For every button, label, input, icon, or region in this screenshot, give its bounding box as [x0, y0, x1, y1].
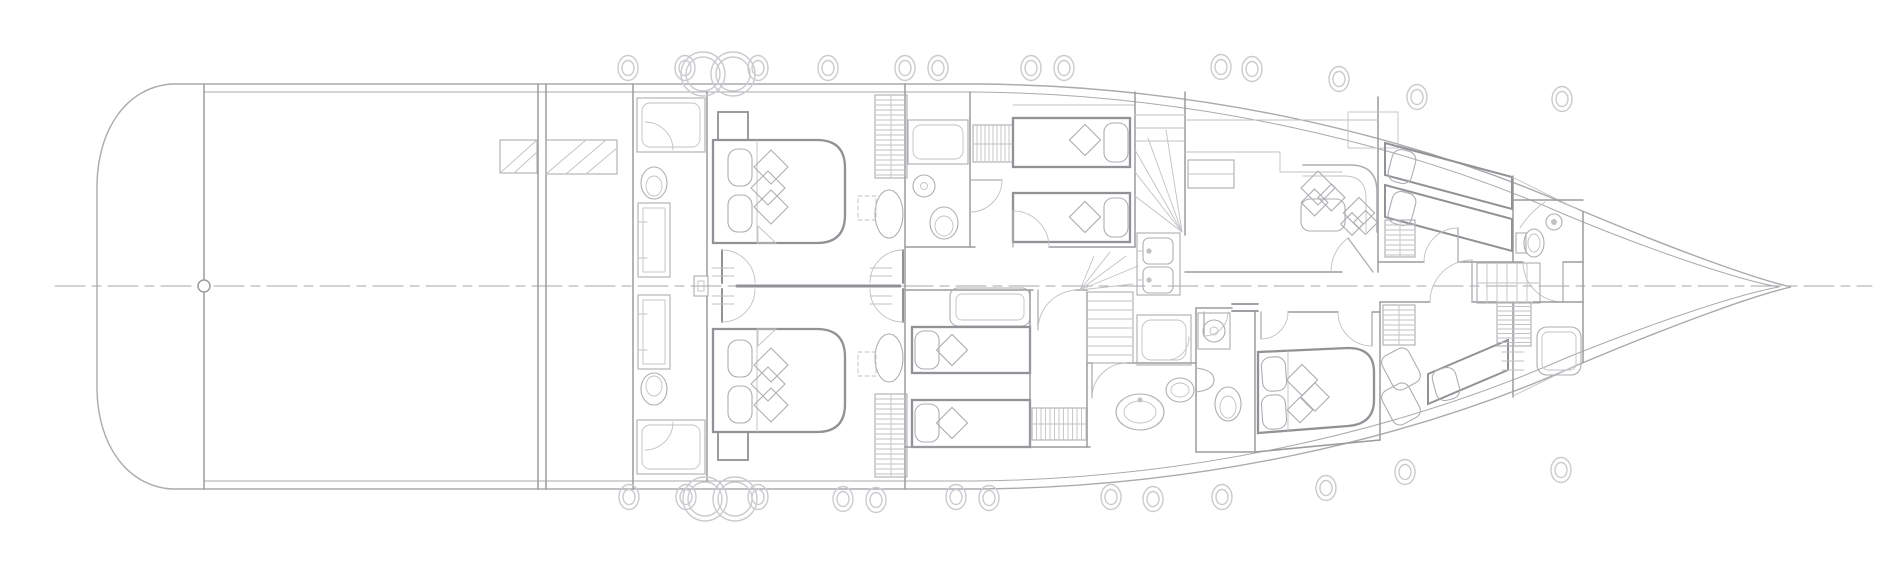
mess-cushion-2: [1318, 184, 1345, 211]
bow-berth-inner: [1542, 332, 1576, 370]
crew-bunk-1: [1385, 143, 1512, 209]
vip-door-arc-fwd-upper: [870, 250, 903, 283]
galley-sink-2-faucet: [1147, 278, 1151, 282]
porthole: [618, 56, 638, 81]
guest-bath-toilet: [1166, 378, 1194, 402]
vip-upper-pillow-2: [728, 195, 752, 232]
twin-lower-bed-1-pillow: [915, 331, 939, 369]
vip-lower-bed: [713, 329, 845, 432]
twin-upper-bed-2-cushion: [1069, 201, 1100, 232]
stern-hatch-right-hatching: [566, 140, 606, 174]
captain-cushion-1: [1286, 364, 1317, 395]
twin-upper-bed-1-pillow: [1104, 123, 1128, 162]
porthole-inner: [870, 493, 882, 508]
laundry-toilet-bowl: [1220, 396, 1236, 418]
vip-lower-pillow-2: [728, 386, 752, 423]
vip-lower-sheet-fold: [758, 329, 776, 346]
vip-lower-table: [858, 352, 876, 376]
porthole: [1211, 55, 1231, 80]
vip-lower-toilet: [641, 373, 667, 405]
centerline-mark: [198, 280, 210, 292]
vip-lower-vanity-top: [643, 300, 665, 364]
porthole-inner: [1058, 61, 1070, 76]
vip-upper-chair: [875, 190, 903, 238]
porthole-inner: [622, 61, 634, 76]
porthole: [748, 56, 768, 81]
twin-bath-toilet-bowl: [935, 216, 953, 236]
porthole-inner: [983, 491, 995, 506]
porthole-inner: [1556, 92, 1568, 107]
porthole-inner: [1025, 61, 1037, 76]
porthole: [1329, 67, 1349, 92]
vip-lower-chair: [875, 334, 903, 382]
mess-cushion-4: [1343, 197, 1374, 228]
deck-winch-inner: [716, 57, 750, 91]
captain-pillow-2: [1261, 394, 1287, 430]
porthole-inner: [1399, 465, 1411, 480]
porthole: [675, 56, 695, 81]
vip-door-arc-fwd-lower: [870, 289, 903, 322]
guest-bath-basin-inner: [1124, 401, 1156, 423]
vip-upper-cushion-1: [754, 150, 788, 184]
twin-upper-bed-2: [1013, 193, 1130, 242]
captain-cushion-3: [1287, 397, 1312, 422]
captain-door-right-arc: [1338, 312, 1372, 346]
stern-hatch-right-hatching: [586, 148, 617, 174]
twin-lower-door-arc: [1038, 290, 1078, 330]
porthole-inner: [1411, 90, 1423, 105]
mess-door-arc: [1331, 238, 1348, 272]
porthole: [1407, 85, 1427, 110]
vip-upper-vanity-top: [643, 208, 665, 272]
porthole: [895, 56, 915, 81]
porthole: [866, 488, 886, 513]
stairs-up-winders: [1148, 138, 1182, 232]
vip-lower-pillow-1: [728, 340, 752, 377]
porthole: [928, 56, 948, 81]
porthole-inner: [1215, 60, 1227, 75]
vip-upper-pillow-1: [728, 149, 752, 186]
twin-lower-bed-2-cushion: [936, 407, 967, 438]
porthole: [1316, 476, 1336, 501]
twin-bath-basin: [913, 175, 935, 197]
vip-upper-cushion-3: [754, 190, 788, 224]
vip-upper-shower-door-arc: [645, 122, 673, 150]
lower-crew-door-arc: [1430, 260, 1472, 302]
deck-winch-inner: [718, 482, 752, 516]
mess-cushion-3: [1301, 189, 1328, 216]
porthole: [946, 485, 966, 510]
captain-door-left-arc: [1261, 312, 1288, 339]
bow-shower-dot: [1552, 220, 1557, 225]
twin-lower-bed-2: [912, 400, 1030, 447]
porthole-inner: [623, 490, 635, 505]
galley-sink-1-faucet: [1147, 249, 1151, 253]
vip-door-arc-aft-lower: [722, 289, 755, 322]
washing-machine-drum: [1203, 320, 1225, 342]
bow-toilet-bowl: [1528, 234, 1540, 252]
mess-sofa-seat-edge: [1303, 176, 1366, 232]
stairs-down-well: [1087, 292, 1133, 363]
porthole-inner: [752, 490, 764, 505]
twin-lower-bed-1: [912, 327, 1030, 373]
porthole: [1054, 56, 1074, 81]
stern-hatch-left-hatching: [514, 152, 537, 173]
porthole-inner: [1216, 490, 1228, 505]
laundry-basin: [1196, 368, 1214, 392]
porthole: [1021, 56, 1041, 81]
porthole-inner: [932, 61, 944, 76]
laundry-toilet: [1215, 387, 1241, 421]
twin-lower-bed-2-pillow: [915, 404, 939, 442]
porthole: [1551, 458, 1571, 483]
bow-toilet: [1524, 229, 1544, 257]
vip-upper-toilet-bowl: [646, 176, 662, 196]
twin-bath-shower-tray: [913, 125, 963, 159]
twin-bath-shower: [908, 120, 968, 164]
porthole-inner: [1105, 490, 1117, 505]
porthole-inner: [1246, 62, 1258, 77]
porthole-inner: [950, 490, 962, 505]
porthole-inner: [1320, 481, 1332, 496]
porthole: [619, 485, 639, 510]
deck-winch: [713, 477, 757, 521]
crew-door-arc: [1424, 228, 1458, 262]
vip-upper-sheet-fold: [758, 226, 776, 243]
porthole-inner: [899, 61, 911, 76]
vip-upper-table: [858, 196, 876, 220]
vip-upper-shower: [637, 98, 705, 152]
deck-winch: [683, 477, 727, 521]
vip-upper-bed-shelf: [718, 112, 748, 140]
captain-pillow-1: [1261, 356, 1287, 392]
stairs-up-winders: [1135, 172, 1182, 232]
guest-bath-toilet-bowl: [1171, 383, 1189, 397]
crew-bunk-2: [1385, 185, 1512, 251]
twin-bath-basin-drain: [921, 183, 928, 190]
vip-upper-cushion-2: [751, 171, 785, 205]
fwd-berth-step-1: [1379, 345, 1423, 393]
mess-door-leaf: [1348, 238, 1373, 272]
bow-bath-door-arc: [1523, 262, 1563, 302]
porthole-inner: [822, 61, 834, 76]
vip-lower-bed-shelf: [718, 432, 748, 460]
porthole: [1242, 57, 1262, 82]
deck-winch: [711, 52, 755, 96]
twin-upper-bed-2-pillow: [1104, 198, 1128, 237]
page: [0, 0, 1900, 568]
porthole: [1552, 87, 1572, 112]
vip-upper-toilet: [641, 167, 667, 199]
vip-lower-cushion-2: [751, 367, 785, 401]
lower-crew-hull-stringer: [1513, 362, 1583, 396]
twin-upper-bed-1-cushion: [1069, 124, 1100, 155]
porthole-inner: [1555, 463, 1567, 478]
crew-shower-tray: [1142, 320, 1186, 360]
twin-lower-bed-1-cushion: [936, 334, 967, 365]
porthole: [1143, 487, 1163, 512]
stairs-up-winders: [1166, 130, 1182, 232]
vip-upper-bed: [713, 140, 845, 243]
stern-hatch-right-hatching: [546, 140, 586, 174]
vip-lower-cushion-3: [754, 348, 788, 382]
twin-lower-sofa-seat: [956, 294, 1024, 320]
vip-door-arc-aft-upper: [722, 250, 755, 283]
guest-bath-door-arc: [1092, 363, 1127, 398]
porthole: [1395, 460, 1415, 485]
porthole-inner: [1147, 492, 1159, 507]
vip-lower-toilet-bowl: [646, 376, 662, 396]
fwd-berth-step-2: [1379, 380, 1423, 428]
captain-cushion-2: [1301, 383, 1329, 411]
porthole: [833, 487, 853, 512]
porthole: [1212, 485, 1232, 510]
twin-bath-door-arc: [970, 180, 1002, 212]
porthole-inner: [837, 492, 849, 507]
guest-bath-basin-faucet: [1138, 398, 1142, 402]
stairs-up-winders: [1135, 150, 1182, 232]
deck-plan-drawing: [0, 0, 1900, 568]
bow-shower-screen: [1520, 202, 1545, 228]
twin-bath-toilet: [930, 207, 958, 239]
vip-lower-cushion-1: [754, 388, 788, 422]
porthole: [818, 56, 838, 81]
lower-crew-bunk: [1428, 340, 1508, 404]
porthole-inner: [1333, 72, 1345, 87]
vip-lower-shower-door-arc: [645, 422, 673, 450]
porthole: [1101, 485, 1121, 510]
vip-lower-shower: [637, 420, 705, 474]
